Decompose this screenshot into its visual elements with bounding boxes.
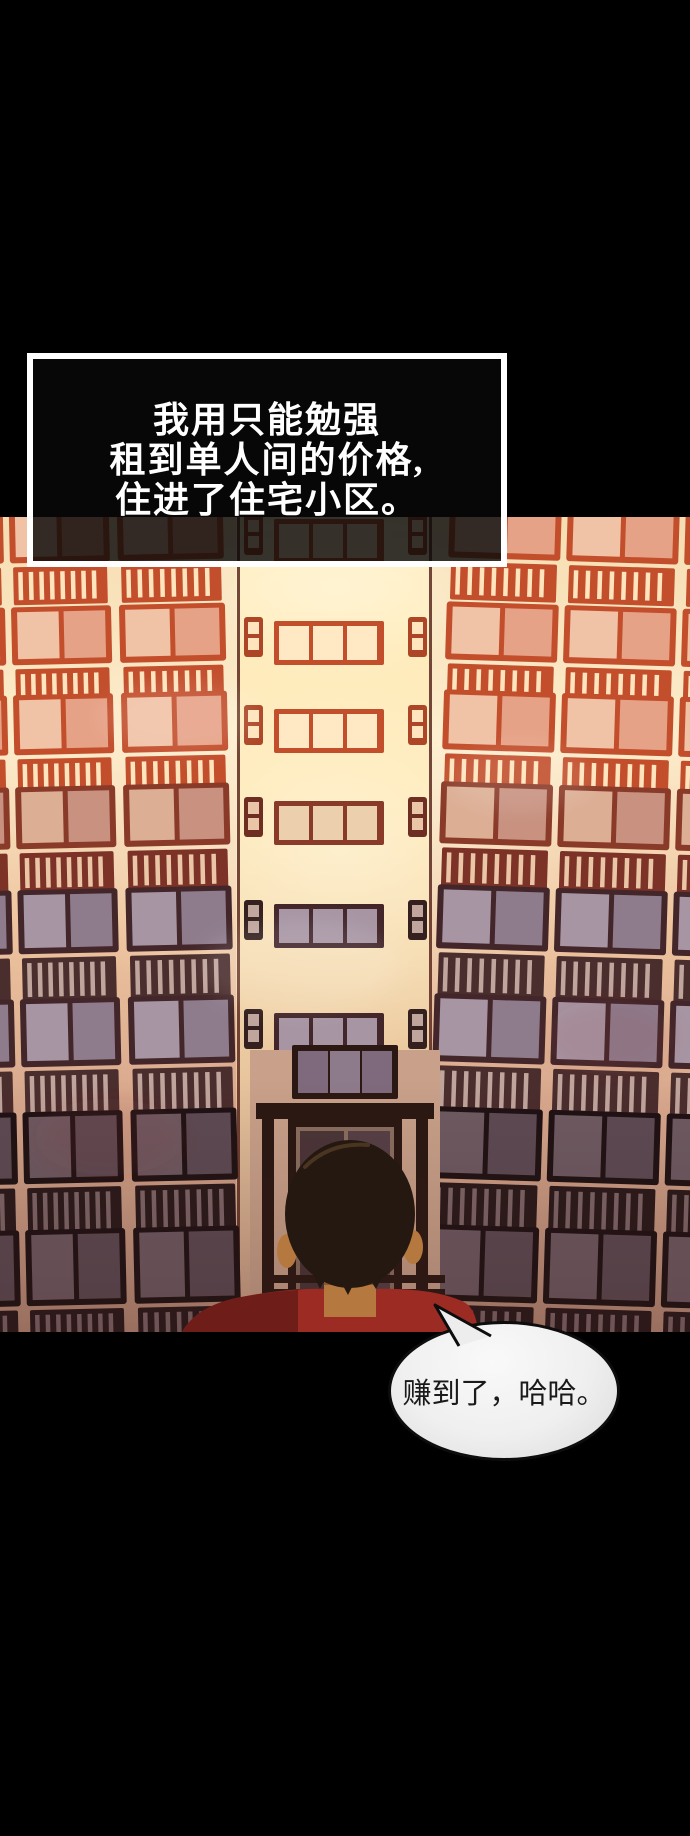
narration-line: 住进了住宅小区。	[115, 480, 419, 520]
speech-bubble-tail	[425, 1298, 505, 1350]
apartment-building-illustration	[0, 517, 690, 1332]
speech-bubble-text: 赚到了，哈哈。	[402, 1370, 605, 1412]
narration-line: 租到单人间的价格,	[109, 440, 424, 480]
comic-panel: 我用只能勉强 租到单人间的价格, 住进了住宅小区。 赚到了，哈哈。	[0, 0, 690, 1836]
narration-box: 我用只能勉强 租到单人间的价格, 住进了住宅小区。	[27, 353, 507, 567]
narration-line: 我用只能勉强	[153, 400, 381, 440]
